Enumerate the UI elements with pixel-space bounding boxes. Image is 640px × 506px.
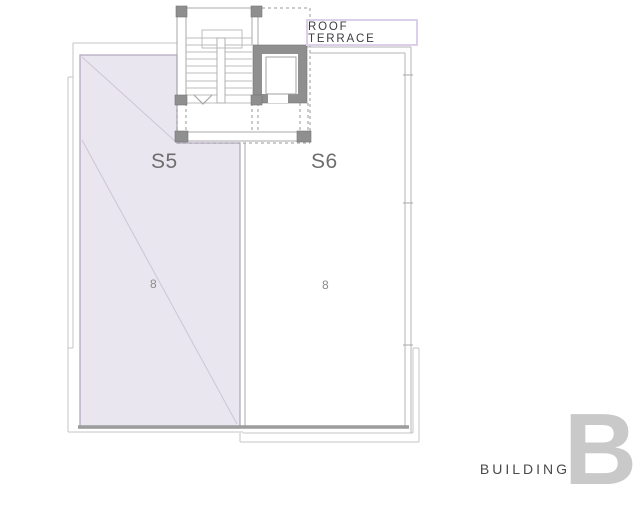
unit-s5-area-value: 8 xyxy=(150,277,157,291)
roof-terrace-label: ROOF TERRACE xyxy=(306,19,418,46)
elevator-shaft xyxy=(253,45,307,103)
unit-s5-label: S5 xyxy=(151,150,178,174)
stair-core xyxy=(177,8,262,104)
unit-s5-region[interactable] xyxy=(80,55,240,428)
unit-s6-area-value: 8 xyxy=(322,278,329,292)
unit-s6-region[interactable] xyxy=(245,47,413,433)
core-landing-strip xyxy=(175,131,311,142)
floor-plan-page: ROOF TERRACE S5 S6 8 8 BUILDING B xyxy=(0,0,640,480)
unit-s6-label: S6 xyxy=(311,150,338,174)
floor-plan-drawing xyxy=(0,0,640,480)
building-letter-watermark: B xyxy=(564,400,637,501)
elevator-car xyxy=(266,57,296,94)
building-word: BUILDING xyxy=(480,461,570,477)
roof-terrace-label-text: ROOF TERRACE xyxy=(308,21,416,45)
